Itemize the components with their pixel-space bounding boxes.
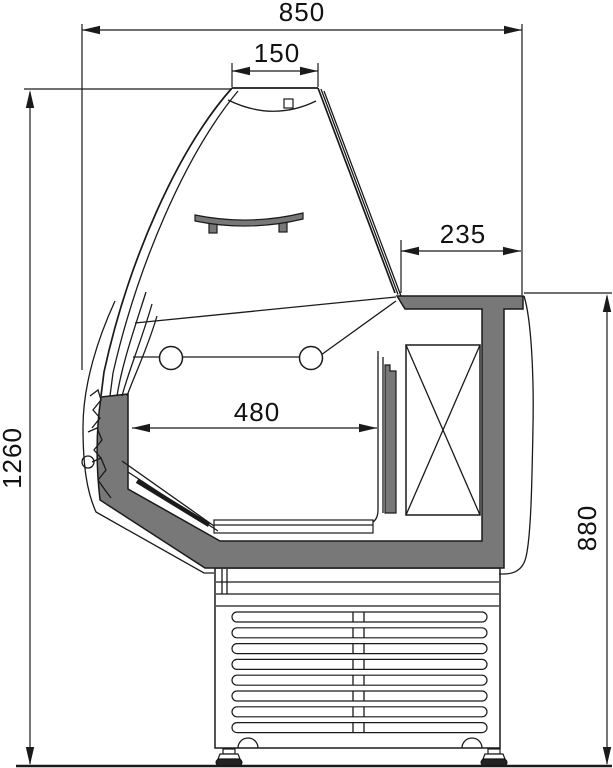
rail-tube-section <box>300 347 323 370</box>
dimension-counter-height: 880 <box>524 293 612 765</box>
technical-drawing: 850 150 235 480 1260 880 <box>0 0 613 768</box>
grille-slot <box>232 691 487 701</box>
dimension-overall-width: 850 <box>82 0 522 370</box>
arrowhead <box>300 67 318 75</box>
dimension-label: 1260 <box>0 427 27 489</box>
back-glass-line <box>318 88 395 293</box>
counter-level-line <box>135 297 396 323</box>
back-glass-line <box>321 89 398 295</box>
dimension-top-width: 150 <box>232 38 318 87</box>
dimension-label: 235 <box>440 219 486 249</box>
arrowhead <box>603 294 611 312</box>
leveling-foot-left <box>216 749 242 766</box>
lamp-box <box>284 99 293 108</box>
front-glass-frame-line <box>122 304 152 396</box>
base-cabinet <box>215 568 500 748</box>
front-glass-frame-line <box>127 316 157 396</box>
glass-canopy <box>101 88 401 396</box>
arrowhead <box>603 747 611 765</box>
arrowhead <box>26 90 34 108</box>
grille-slot <box>232 659 487 669</box>
grille-slot <box>232 612 487 622</box>
grille-slot <box>232 675 487 685</box>
display-shelf <box>195 213 303 233</box>
grille-slot <box>232 707 487 717</box>
dimension-counter-depth: 235 <box>401 219 521 293</box>
dimension-well-width: 480 <box>132 397 377 432</box>
shelf-rail-circles <box>160 347 323 370</box>
back-glass-line <box>324 91 401 296</box>
arrowhead <box>401 247 419 255</box>
rail-tube-section <box>160 347 183 370</box>
back-duct-panel <box>385 365 396 513</box>
grille-slot <box>232 723 487 733</box>
dimension-label: 880 <box>572 505 602 551</box>
arrowhead <box>359 424 377 432</box>
dimension-label: 850 <box>279 0 325 27</box>
arrowhead <box>503 247 521 255</box>
arrowhead <box>26 747 34 765</box>
machine-base <box>215 568 500 748</box>
well-back-panel <box>246 351 383 525</box>
arrowhead <box>132 424 150 432</box>
dimension-label: 480 <box>234 397 280 427</box>
dimension-label: 150 <box>254 38 300 68</box>
condenser-unit <box>406 345 480 515</box>
rail-slope-line <box>321 301 396 355</box>
canopy-top-cap <box>228 88 318 111</box>
drawing-svg: 850 150 235 480 1260 880 <box>0 0 613 768</box>
arrowhead <box>504 26 522 34</box>
grille-slot <box>232 644 487 654</box>
arrowhead <box>82 26 100 34</box>
arrowhead <box>232 67 250 75</box>
leveling-foot-right <box>481 749 507 766</box>
grille-slot <box>232 628 487 638</box>
